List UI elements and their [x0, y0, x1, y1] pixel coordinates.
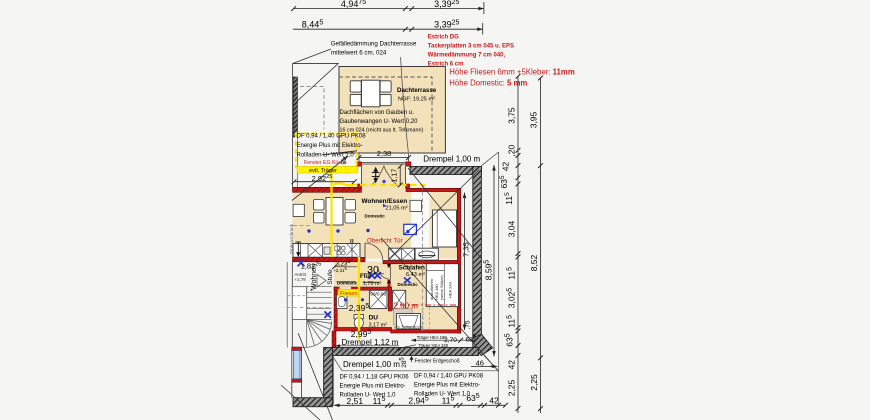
svg-text:Fenster EG Küche: Fenster EG Küche — [304, 160, 347, 166]
svg-text:Energie Plus mit Elektro-: Energie Plus mit Elektro- — [297, 143, 363, 149]
svg-text:DF 0,94 / 1,40 GPU PK08: DF 0,94 / 1,40 GPU PK08 — [297, 134, 367, 140]
svg-text:16 cm 024 (reicht aus lt. Telk: 16 cm 024 (reicht aus lt. Telkmann) — [340, 127, 424, 133]
svg-text:Flur: Flur — [360, 274, 372, 280]
svg-text:Drempel 1,12 m: Drempel 1,12 m — [342, 338, 399, 347]
svg-text:90/0,90: 90/0,90 — [370, 292, 386, 298]
svg-text:Oberlicht Tür: Oberlicht Tür — [367, 237, 403, 244]
svg-text:als Schiebetür: als Schiebetür — [394, 324, 424, 329]
svg-text:46: 46 — [476, 358, 484, 367]
svg-text:Fliesen: Fliesen — [340, 291, 357, 297]
svg-text:Rollladen U- Wert 1,0: Rollladen U- Wert 1,0 — [297, 153, 355, 159]
svg-text:42: 42 — [501, 162, 511, 172]
svg-text:2,00 m: 2,00 m — [394, 301, 419, 310]
svg-text:NGF: 19,25 m²: NGF: 19,25 m² — [398, 97, 435, 103]
svg-text:6,43 m²: 6,43 m² — [406, 272, 425, 278]
svg-text:Schlafen: Schlafen — [399, 264, 425, 271]
svg-text:mittelwert 6 cm, 024: mittelwert 6 cm, 024 — [331, 49, 387, 56]
svg-text:Domestic: Domestic — [337, 280, 358, 285]
svg-text:Fenster Erdgeschoß: Fenster Erdgeschoß — [415, 358, 460, 364]
svg-text:HEA 243: HEA 243 — [448, 281, 453, 298]
svg-text:Träger HEA 180: Träger HEA 180 — [417, 335, 448, 340]
svg-text:Stufe: Stufe — [327, 269, 334, 285]
svg-text:Wohnen: Wohnen — [311, 264, 318, 290]
svg-text:3,75: 3,75 — [507, 107, 517, 124]
svg-text:Gaubenwangen U- Wert 0,20: Gaubenwangen U- Wert 0,20 — [340, 119, 419, 125]
svg-text:Tackerplatten 3 cm 045 u. EPS: Tackerplatten 3 cm 045 u. EPS — [428, 43, 514, 49]
svg-text:3,17 m²: 3,17 m² — [369, 323, 387, 329]
svg-text:DF 0,94 / 1,40 GPU PK08: DF 0,94 / 1,40 GPU PK08 — [414, 373, 484, 379]
svg-text:42: 42 — [489, 395, 499, 405]
svg-text:42: 42 — [507, 360, 517, 370]
svg-text:Dachflächen von Gauben u.: Dachflächen von Gauben u. — [340, 110, 415, 116]
svg-text:Domestic: Domestic — [365, 213, 386, 218]
svg-text:Drempel 1,00 m: Drempel 1,00 m — [423, 155, 480, 164]
svg-text:50: 50 — [342, 158, 348, 164]
svg-text:Domestic: Domestic — [398, 282, 419, 287]
svg-text:8,52: 8,52 — [529, 254, 539, 271]
svg-text:Energie Plus mit Elektro-: Energie Plus mit Elektro- — [414, 382, 480, 388]
svg-text:1,17: 1,17 — [392, 169, 399, 183]
svg-text:DU: DU — [369, 314, 379, 321]
svg-text:2,38: 2,38 — [377, 149, 392, 158]
svg-text:Wohnen/Essen: Wohnen/Essen — [362, 198, 408, 205]
svg-text:3,95: 3,95 — [529, 111, 539, 128]
svg-text:(wenn Stütze): (wenn Stütze) — [439, 275, 444, 300]
svg-text:+2,79: +2,79 — [295, 277, 307, 282]
svg-text:Energie Plus mit Elektro-: Energie Plus mit Elektro- — [340, 383, 406, 389]
svg-text:Estrich 6 cm: Estrich 6 cm — [428, 61, 464, 67]
svg-text:,20: ,20 — [507, 145, 517, 157]
svg-text:Höhe Fliesen 6mm +5Kleber: 11m: Höhe Fliesen 6mm +5Kleber: 11mm — [449, 68, 575, 77]
svg-text:Wärmedämmung 7 cm 040,: Wärmedämmung 7 cm 040, — [428, 52, 506, 58]
svg-text:,75: ,75 — [465, 320, 472, 329]
svg-text:3,04: 3,04 — [507, 220, 517, 237]
svg-text:2,70: 2,70 — [444, 337, 457, 344]
svg-text:1,70 m²: 1,70 m² — [363, 281, 381, 287]
svg-text:7,35: 7,35 — [462, 242, 471, 257]
svg-text:DF 0,94 / 1,18 GPU PK06: DF 0,94 / 1,18 GPU PK06 — [340, 374, 410, 380]
svg-text:21,05 m²: 21,05 m² — [386, 206, 408, 212]
svg-text:Drempel 1,00 m: Drempel 1,00 m — [343, 360, 400, 369]
svg-text:Dachterrasse: Dachterrasse — [397, 87, 437, 94]
svg-text:Gefälledämmung Dachterrasse: Gefälledämmung Dachterrasse — [331, 40, 417, 47]
svg-text:Estrich DG: Estrich DG — [428, 34, 459, 40]
svg-text:2,25: 2,25 — [529, 374, 539, 391]
svg-text:Höhe Domestic: 5 mm: Höhe Domestic: 5 mm — [449, 79, 527, 88]
svg-text:2,51: 2,51 — [347, 396, 364, 406]
svg-text:2,25: 2,25 — [507, 379, 517, 396]
